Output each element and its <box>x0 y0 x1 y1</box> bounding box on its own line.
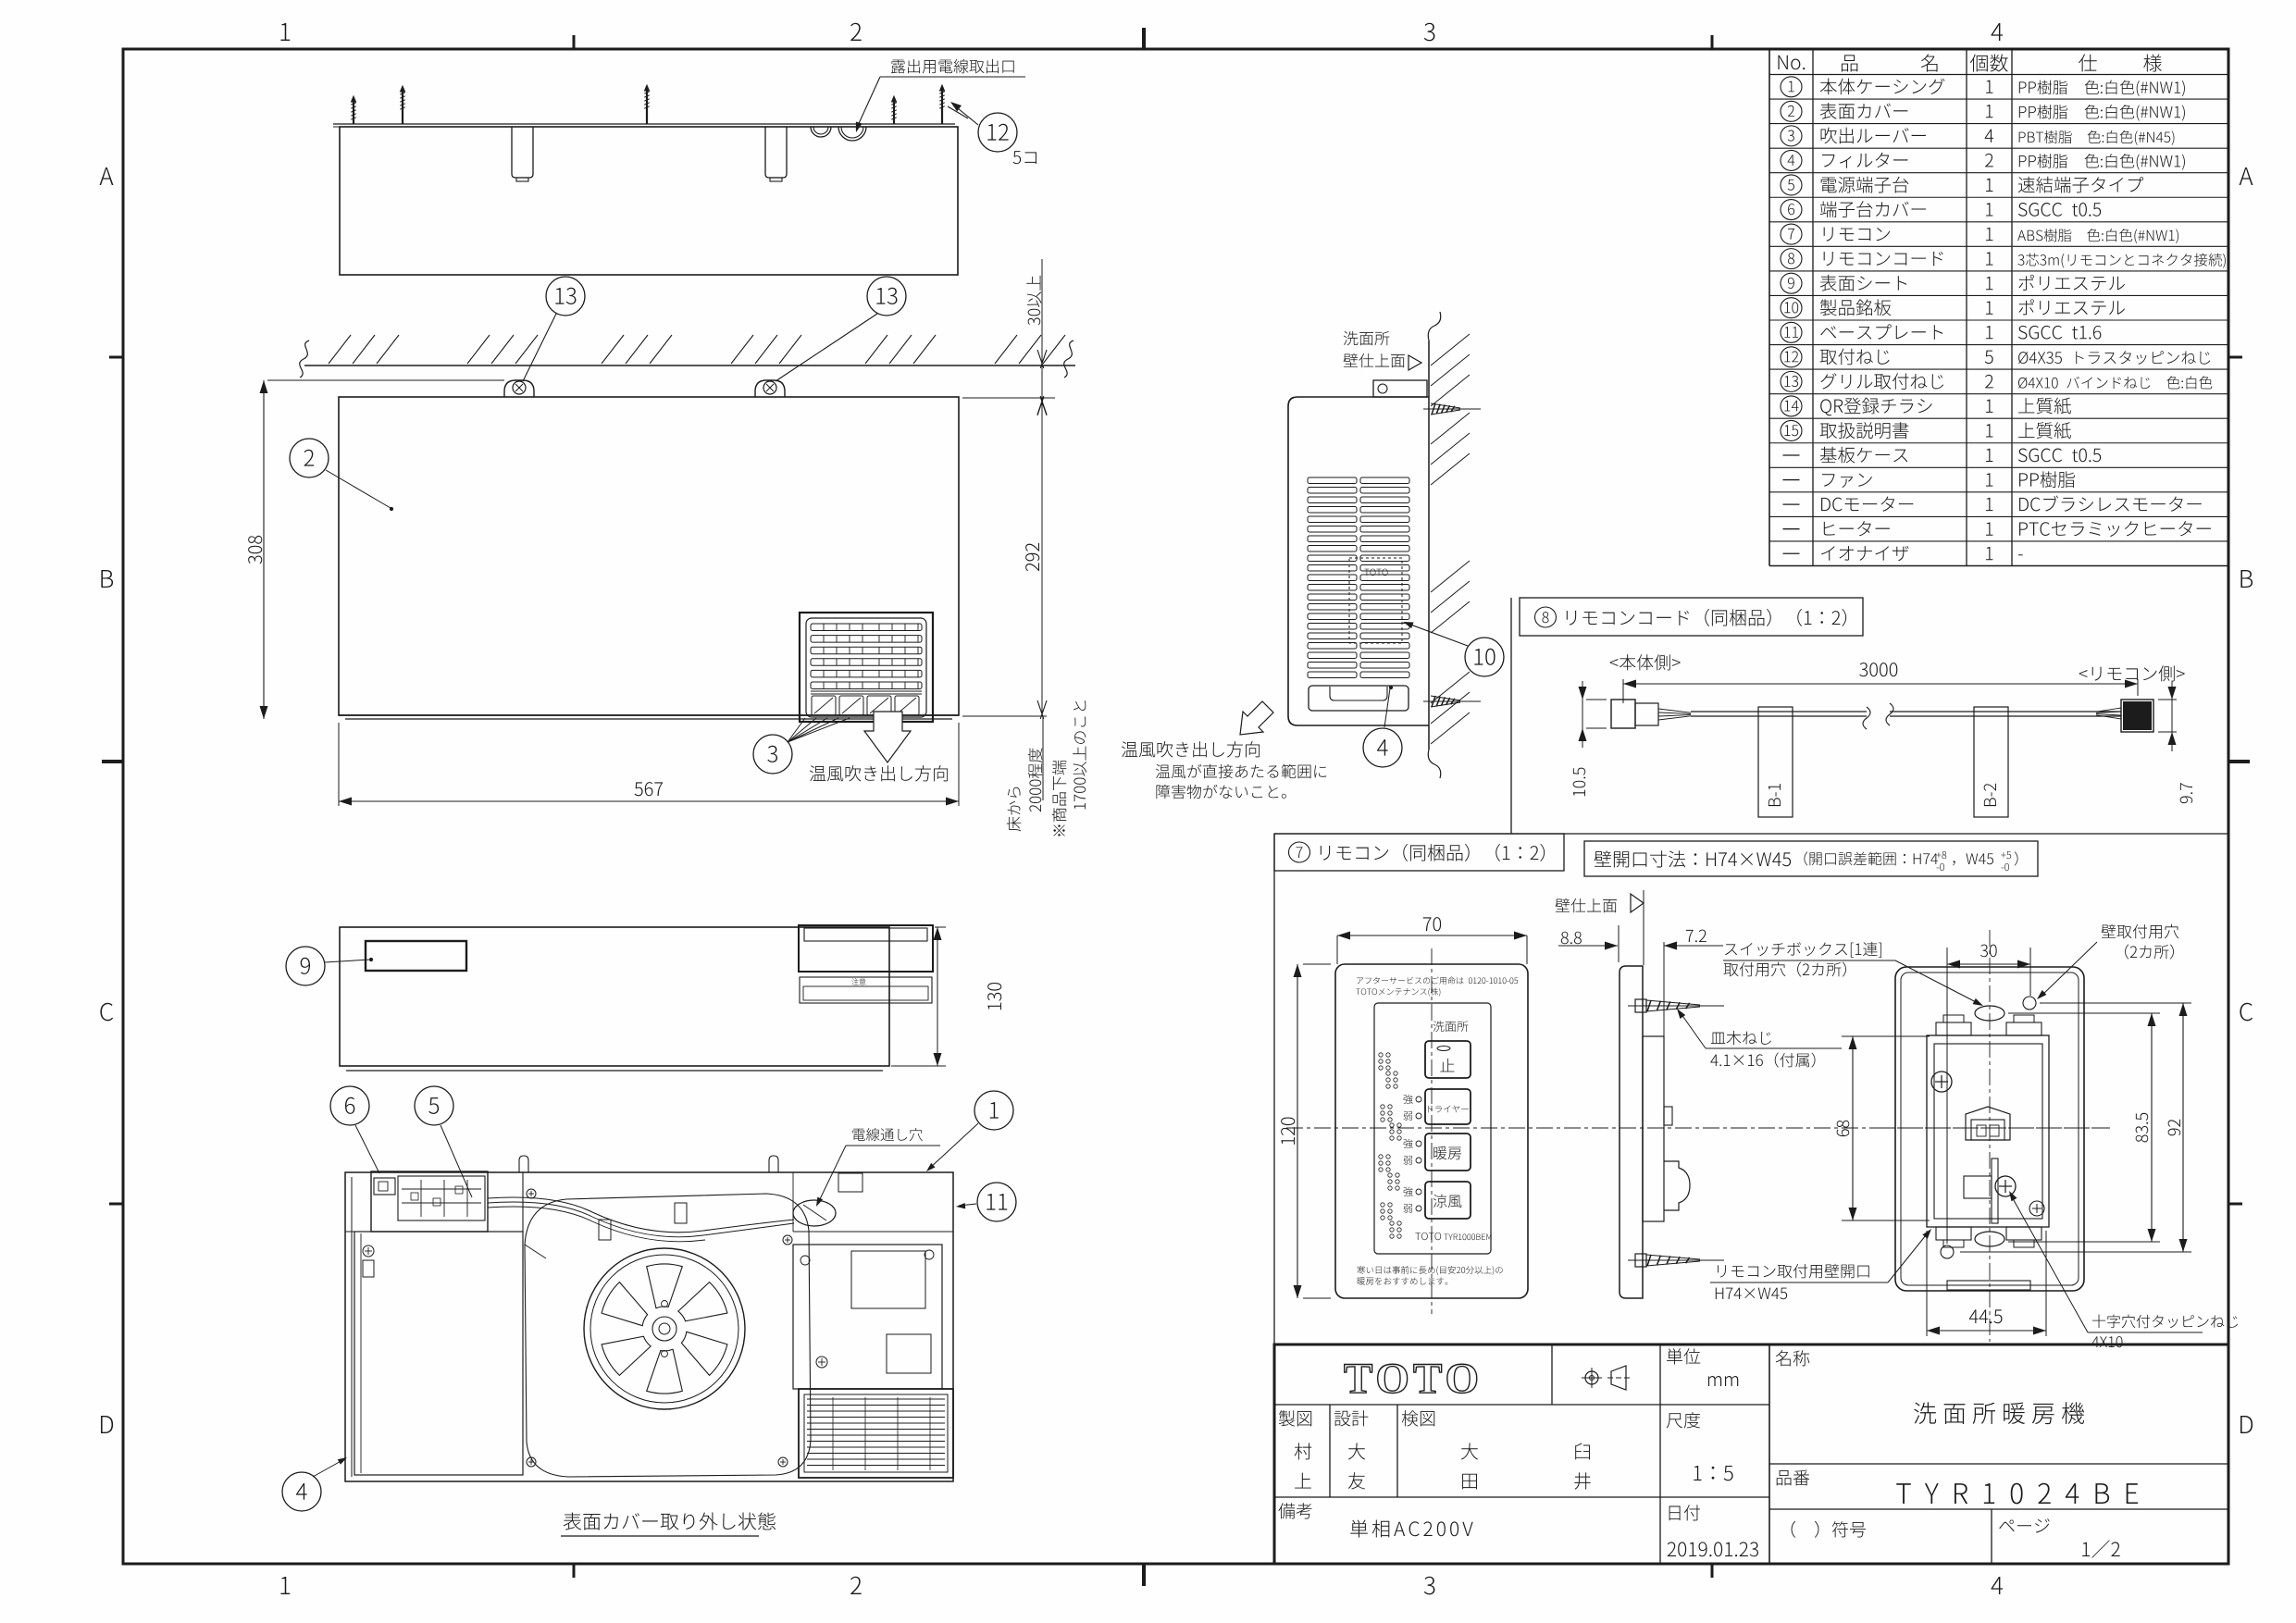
svg-text:TOTO: TOTO <box>1344 1355 1483 1403</box>
